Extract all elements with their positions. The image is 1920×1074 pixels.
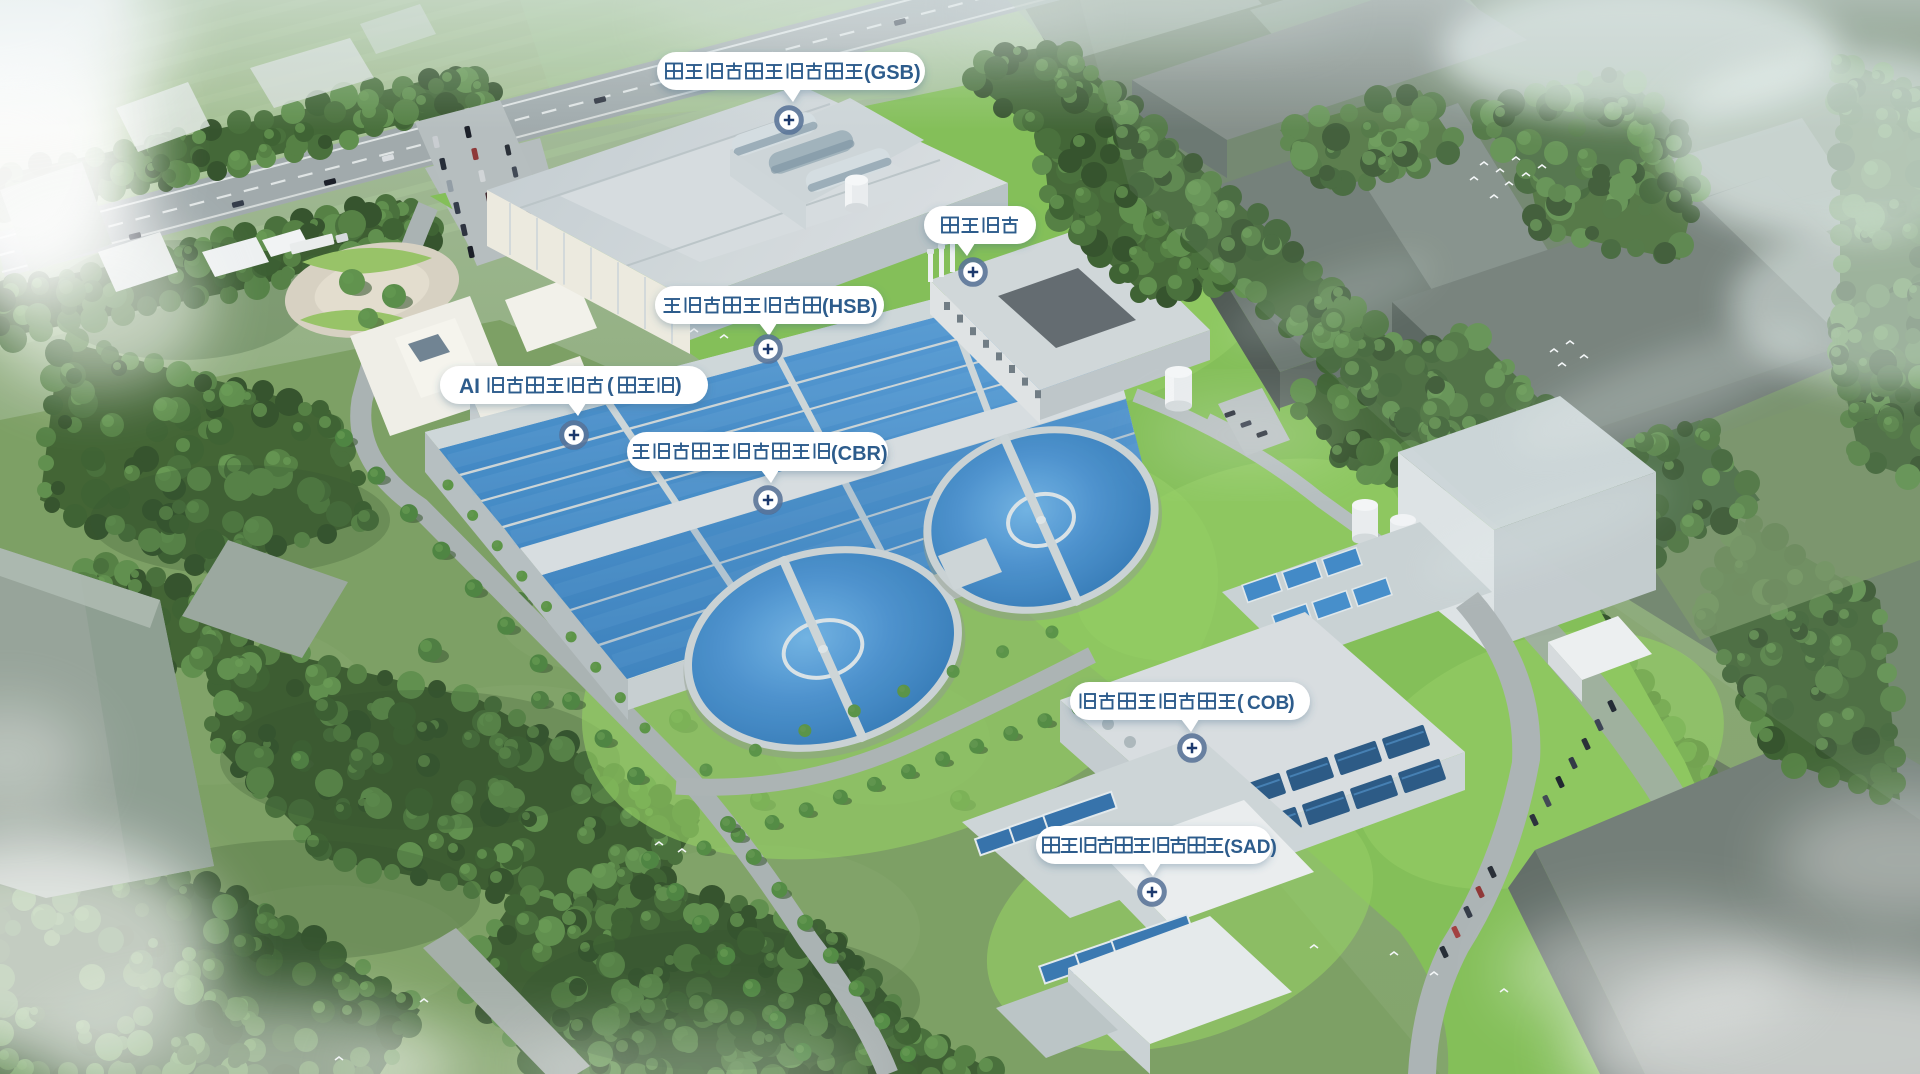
svg-text:(: ( — [1237, 692, 1244, 714]
svg-text:COB: COB — [1247, 693, 1289, 714]
svg-text:(CBR): (CBR) — [831, 443, 888, 465]
svg-text:(HSB): (HSB) — [822, 296, 878, 318]
svg-text:AI: AI — [459, 375, 480, 398]
svg-text:(: ( — [607, 375, 614, 397]
svg-text:): ) — [1288, 692, 1295, 714]
svg-text:): ) — [675, 375, 682, 397]
svg-text:(SAD): (SAD) — [1224, 837, 1277, 858]
svg-text:(GSB): (GSB) — [864, 62, 921, 84]
